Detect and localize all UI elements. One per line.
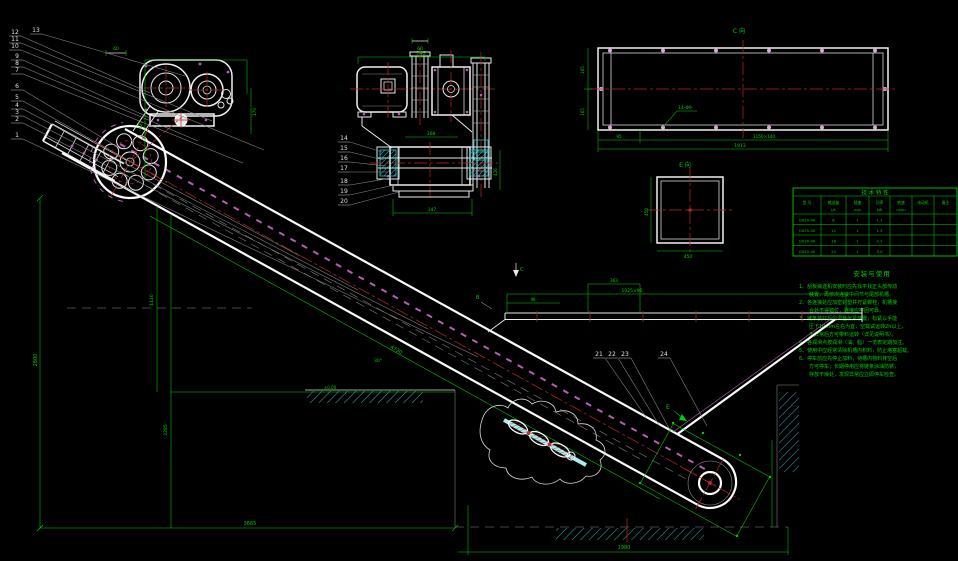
table-header: 备注 — [942, 200, 950, 205]
drive-section-view: 60 745 308 147 426 — [350, 38, 500, 216]
balloon: 6 — [15, 83, 19, 90]
ground-level-label: ±0.00 — [324, 385, 337, 390]
view-c-dim-b-mid: 1150×140 — [753, 134, 775, 139]
note-line: 压下10mm左右为宜，空载试运转2h以上， — [799, 323, 906, 330]
table-unit: kW — [877, 208, 883, 212]
table-cell: 2.2 — [876, 239, 883, 244]
table-cell: 1.5 — [876, 228, 883, 233]
section-arrow — [513, 270, 519, 277]
balloon: 15 — [340, 145, 348, 152]
note-line: 方可停车；长期停用应将链条涂油防锈， — [799, 363, 899, 370]
mid-height-dim-1: 1120 — [149, 294, 155, 306]
mid-height-dim-2: 2285 — [163, 424, 169, 436]
table-header: 输送量 — [828, 200, 840, 205]
overall-height-dim: 2800 — [33, 354, 39, 367]
table-title: 技 术 特 性 — [861, 189, 889, 197]
view-c-hole-callout: 14-Φ9 — [678, 105, 692, 111]
table-cell: 1 — [856, 249, 859, 254]
note-line: 装置，再依次连接中间节与尾部机槽。 — [799, 291, 894, 298]
balloon: 4 — [15, 102, 19, 109]
notes-title: 安装与使用 — [853, 269, 891, 278]
table-cell: 1 — [856, 218, 859, 223]
table-header: 功率 — [876, 200, 884, 205]
table-cell: GX20-40 — [799, 218, 816, 223]
view-e-dim-w: 450 — [684, 254, 693, 260]
balloon: 14 — [340, 135, 348, 142]
view-c-dim-total: 1913 — [734, 143, 746, 149]
note-line: 3、链条装好后应调整张紧装置，松紧以手能 — [799, 315, 897, 322]
table-cell: GX30-40 — [799, 239, 816, 244]
installation-notes: 安装与使用 1、刮板输送机安装时应先找平找正头部传动 装置，再依次连接中间节与尾… — [799, 269, 912, 378]
table-unit: m/s — [854, 208, 861, 212]
head-assembly: 40 420 170 — [43, 46, 258, 201]
head-small-dim: 40 — [113, 46, 119, 52]
head-right-dim: 170 — [252, 108, 258, 117]
table-cell: 1 — [856, 239, 859, 244]
motor-width-dim: 745 — [416, 51, 426, 57]
table-header: 转速 — [897, 200, 905, 205]
view-e-label: E向 — [679, 161, 693, 169]
table-unit: r/min — [896, 208, 905, 212]
hopper-left-dim: 98 — [530, 297, 536, 302]
balloon: 20 — [340, 198, 348, 205]
balloon: 11 — [11, 36, 19, 43]
balloon: 2 — [15, 116, 19, 123]
main-dimensions: 2800 1120 2285 3665 1980 ±0.00 30° — [33, 195, 788, 555]
table-header: 电动机 — [917, 200, 929, 205]
balloon: 17 — [340, 165, 348, 172]
table-unit: t/h — [831, 208, 836, 212]
table-cell: 12 — [831, 228, 836, 233]
gearbox-top-view — [140, 60, 233, 116]
view-c-dim-left-top: 165 — [580, 66, 585, 74]
table-header: 链速 — [854, 200, 862, 205]
balloon: 21 — [595, 351, 603, 358]
table-cell: 8 — [832, 218, 835, 223]
balloon: 18 — [340, 178, 348, 185]
table-cell: 3.0 — [876, 249, 883, 254]
view-c-label: C向 — [733, 27, 747, 35]
view-c: C向 165 165 95 1150×140 1913 14-Φ9 — [580, 27, 896, 152]
view-c-dim-b-small: 95 — [616, 134, 622, 139]
table-cell: 24 — [831, 249, 836, 254]
incline-angle-label: 30° — [374, 358, 382, 364]
balloon: 19 — [340, 188, 348, 195]
balloon: 5 — [15, 94, 19, 101]
tail-cap — [697, 459, 736, 508]
table-cell: 16 — [831, 239, 836, 244]
balloon: 8 — [15, 60, 19, 67]
view-e: E向 450 450 — [644, 161, 733, 260]
balloon: 7 — [15, 67, 19, 74]
hopper-length-dim: 1025×90 — [622, 288, 643, 294]
table-cell: GX40-40 — [799, 249, 816, 254]
view-e-dim-h: 450 — [644, 208, 649, 216]
note-line: 1、刮板输送机安装时应先找平找正头部传动 — [799, 283, 897, 290]
table-cell: 1 — [856, 228, 859, 233]
balloon: 9 — [15, 53, 19, 60]
note-line: 4、各润滑点按润滑（油、脂）一览表定期加注。 — [799, 339, 907, 346]
c-arrow-label: C — [520, 267, 524, 273]
e-arrowhead — [679, 414, 687, 421]
balloon: 22 — [608, 351, 616, 358]
balloon: 23 — [621, 351, 629, 358]
note-line: 存放干燥处，发现异常应立即停车检查。 — [799, 371, 899, 378]
e-arrow-label: E — [666, 404, 670, 411]
note-line: 6、停车前应先停止加料，待槽内物料排空后 — [799, 355, 897, 362]
tech-table: 技 术 特 性 型 号 输送量 链速 功率 转速 电动机 备注 t/h m/s … — [793, 188, 957, 256]
slope-length-dim: 4730 — [389, 345, 403, 356]
balloon: 24 — [660, 351, 668, 358]
hopper-small-dim: 363 — [610, 278, 618, 283]
chain-detail — [480, 399, 605, 484]
base-width-dim: 147 — [428, 207, 437, 213]
drive-height-dim: 426 — [493, 168, 498, 176]
note-line: 2、各连接处应加密封垫并拧紧螺栓，机槽接 — [799, 299, 897, 306]
table-cell: 1.1 — [876, 218, 883, 223]
note-line: 5、使用中应经常清除机槽内积料，防止堵塞超载。 — [799, 347, 912, 354]
balloon: 10 — [11, 43, 19, 50]
drawing-svg: 4730 — [0, 0, 958, 561]
scraper-chain-line — [120, 144, 712, 473]
balloon: 3 — [15, 109, 19, 116]
cad-drawing-canvas: 4730 — [0, 0, 958, 561]
conveyor-centerline — [108, 149, 716, 486]
balloon: 12 — [11, 29, 19, 36]
shaft-span-dim: 308 — [427, 131, 436, 137]
conveyor-bottom-edge — [62, 153, 697, 505]
view-c-dim-left-bot: 165 — [580, 108, 585, 116]
bottom-left-dim: 3665 — [244, 521, 257, 527]
table-cell: GX25-40 — [799, 228, 816, 233]
bottom-right-dim: 1980 — [618, 545, 631, 551]
table-header: 型 号 — [803, 200, 812, 205]
b-arrow-label: B — [476, 295, 480, 301]
balloon: 16 — [340, 155, 348, 162]
balloon: 1 — [15, 132, 19, 139]
balloon: 13 — [32, 27, 40, 34]
